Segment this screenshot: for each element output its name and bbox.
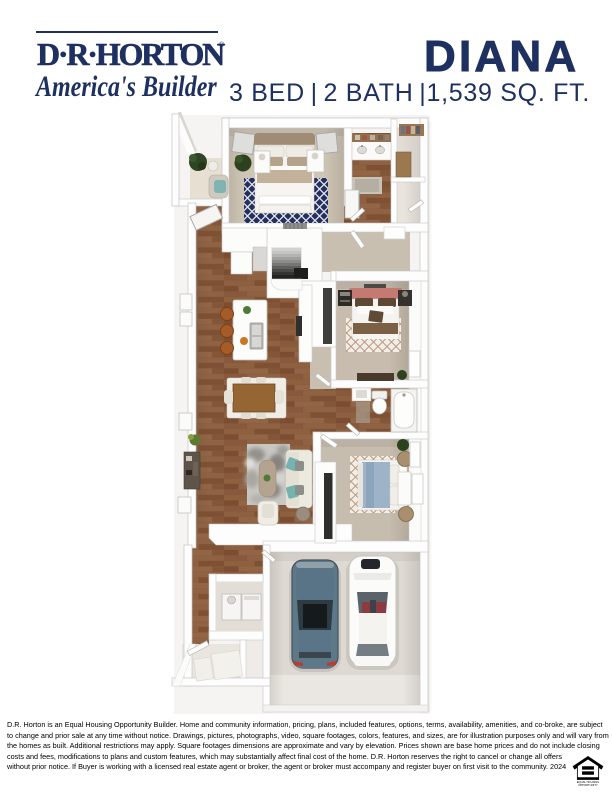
svg-text:OPPORTUNITY: OPPORTUNITY — [578, 783, 598, 786]
